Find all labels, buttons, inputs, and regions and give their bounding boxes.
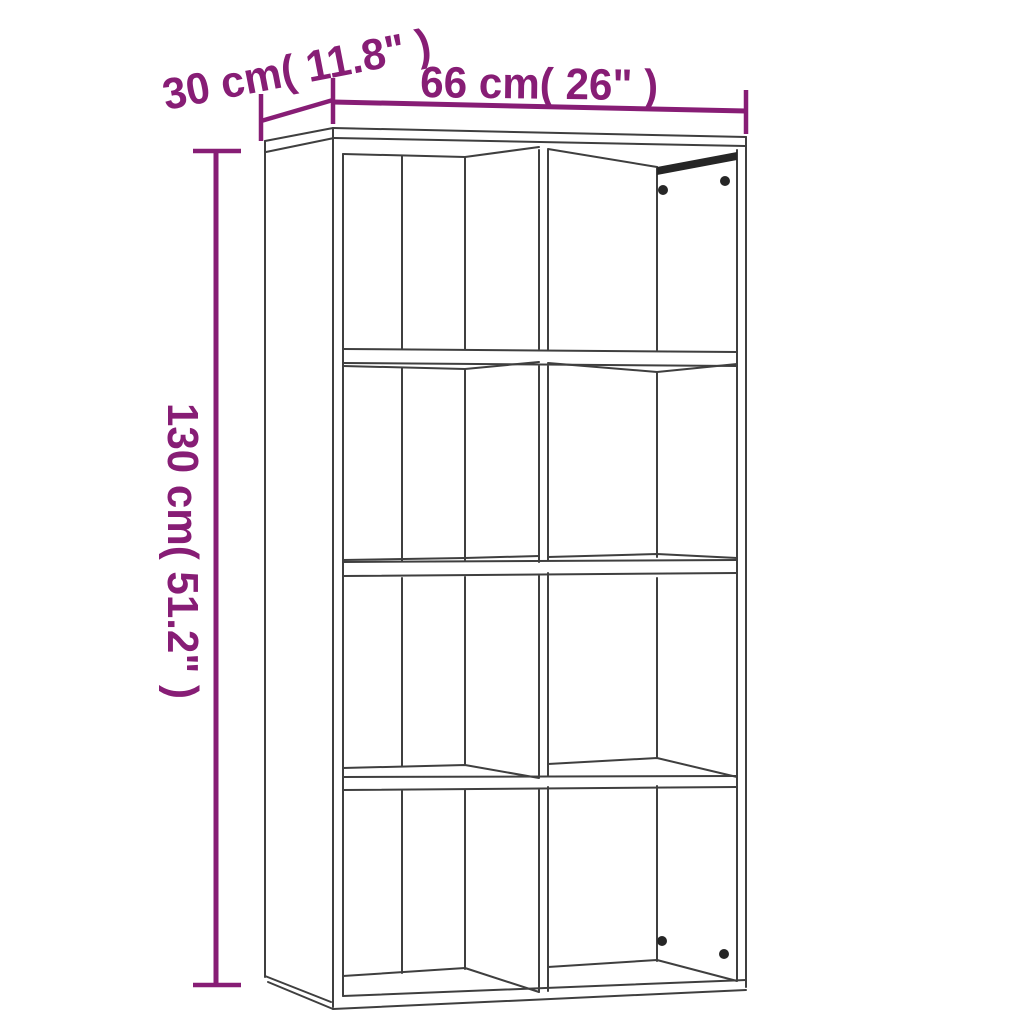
width-dimension-label: 66 cm( 26" ) <box>420 58 659 110</box>
row1-right-ceiling-edge <box>548 149 657 167</box>
front-top-edge <box>333 128 746 137</box>
depth-dimension-line <box>261 100 333 121</box>
shelf3-front-bottom <box>343 787 737 790</box>
row3-right-floor-edges <box>548 758 737 777</box>
row1-left-ceiling-edges <box>343 147 539 157</box>
height-dimension-label: 130 cm( 51.2" ) <box>158 403 207 699</box>
drill-hole-top-2 <box>720 176 730 186</box>
row4-right-floor-edges <box>548 960 737 981</box>
shelf1-front-bottom <box>343 363 737 366</box>
bottom-left-depth-edge <box>265 976 331 1002</box>
drill-hole-top-1 <box>658 185 668 195</box>
bookshelf-dimension-drawing: 130 cm( 51.2" ) 30 cm( 11.8" ) 66 cm( 26… <box>0 0 1024 1024</box>
row2-right-floor-edges <box>548 554 737 558</box>
top-left-depth-edge <box>265 128 333 141</box>
shelf2-front-bottom <box>343 573 737 576</box>
row2-left-floor-edges <box>343 556 539 560</box>
top-band-lower-edge <box>334 138 745 146</box>
top-left-depth-edge-inner <box>266 138 334 152</box>
bookshelf-outline <box>265 128 746 1009</box>
drill-hole-bottom-2 <box>719 949 729 959</box>
drill-hole-bottom-1 <box>657 936 667 946</box>
depth-dimension: 30 cm( 11.8" ) <box>159 20 435 141</box>
bottom-left-corner-edge <box>268 982 333 1009</box>
height-dimension: 130 cm( 51.2" ) <box>158 151 241 985</box>
right-wall-top-edge-strip <box>657 152 737 175</box>
product-dimension-diagram: 130 cm( 51.2" ) 30 cm( 11.8" ) 66 cm( 26… <box>0 0 1024 1024</box>
